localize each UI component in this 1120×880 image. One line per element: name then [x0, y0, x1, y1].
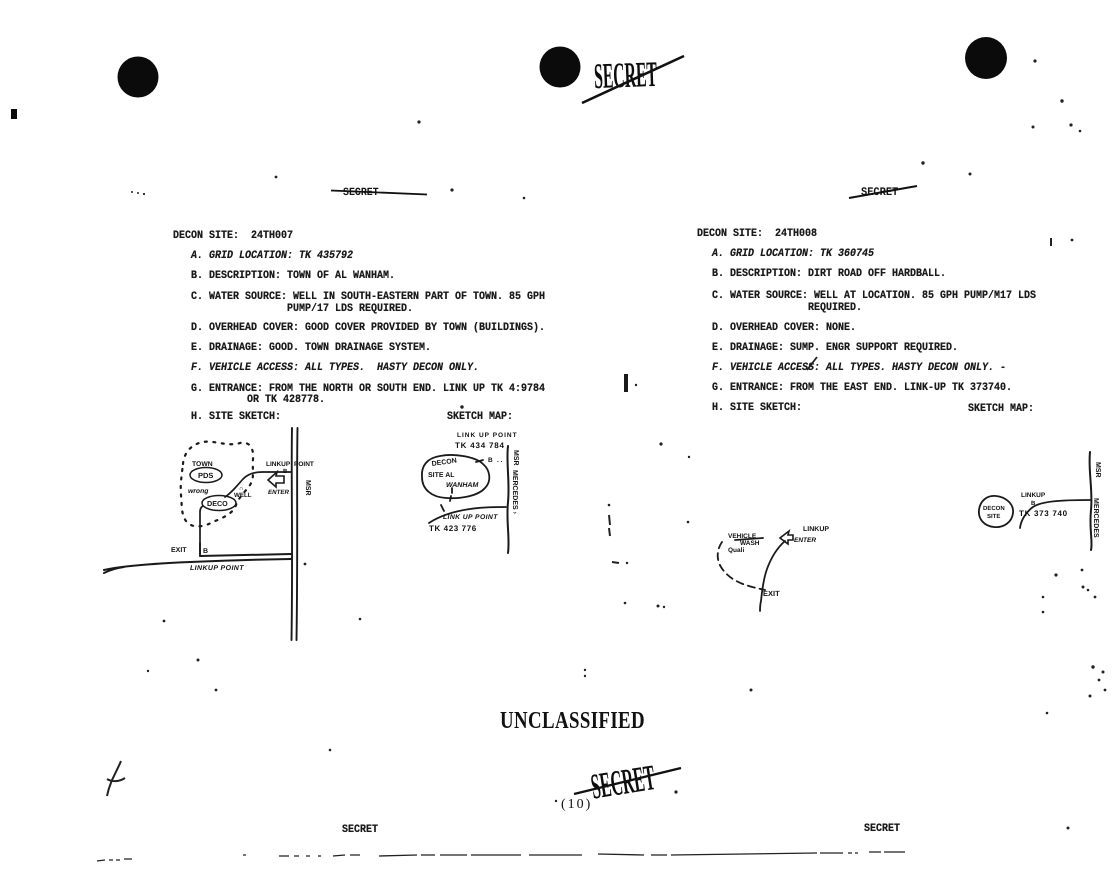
svg-text:TK 423 776: TK 423 776: [429, 524, 477, 533]
svg-text:Quali: Quali: [728, 547, 744, 554]
svg-text:MSR: MSR: [304, 480, 311, 496]
svg-text:DECON: DECON: [431, 458, 457, 468]
svg-text:B: B: [283, 468, 288, 475]
svg-text:SITE: SITE: [987, 513, 1000, 520]
svg-text:TK 434 784: TK 434 784: [455, 441, 505, 450]
svg-text:LINKUP: LINKUP: [266, 461, 291, 468]
svg-text:. .: . .: [497, 457, 503, 464]
svg-text:SITE AL: SITE AL: [428, 472, 455, 479]
svg-text:B: B: [203, 548, 208, 555]
svg-text:WANHAM: WANHAM: [446, 482, 478, 489]
svg-text:EXIT: EXIT: [763, 589, 780, 598]
svg-text:∩: ∩: [239, 486, 243, 492]
svg-text:TK 373 740: TK 373 740: [1019, 509, 1068, 518]
svg-text:LINKUP: LINKUP: [1021, 492, 1046, 499]
svg-text:DECO: DECO: [207, 499, 228, 508]
svg-text:POINT: POINT: [294, 461, 314, 468]
svg-text:MSR: MSR: [512, 450, 519, 466]
svg-text:ENTER: ENTER: [794, 537, 816, 544]
svg-text:B: B: [488, 457, 493, 464]
svg-text:TOWN: TOWN: [192, 461, 213, 468]
svg-text:LINK UP POINT: LINK UP POINT: [443, 514, 498, 521]
svg-text:wrong: wrong: [188, 488, 209, 495]
svg-text:WELL: WELL: [234, 492, 252, 499]
svg-text:LINKUP: LINKUP: [803, 526, 829, 533]
svg-text:B: B: [1031, 500, 1036, 507]
svg-text:ENTER: ENTER: [268, 489, 290, 496]
svg-text:SECRET: SECRET: [593, 54, 657, 96]
svg-text:EXIT: EXIT: [171, 547, 187, 554]
svg-text:DECON: DECON: [983, 505, 1005, 512]
svg-text:LINKUP POINT: LINKUP POINT: [190, 565, 244, 572]
svg-text:LINK UP POINT: LINK UP POINT: [457, 432, 518, 439]
svg-text:MERCEDES: MERCEDES: [1092, 498, 1099, 538]
svg-text:MSR: MSR: [1094, 462, 1101, 478]
svg-text:PDS: PDS: [198, 471, 213, 480]
svg-text:MERCEDES ›: MERCEDES ›: [511, 470, 518, 515]
svg-text:VEHICLE: VEHICLE: [728, 533, 757, 540]
svg-text:WASH: WASH: [740, 540, 760, 547]
